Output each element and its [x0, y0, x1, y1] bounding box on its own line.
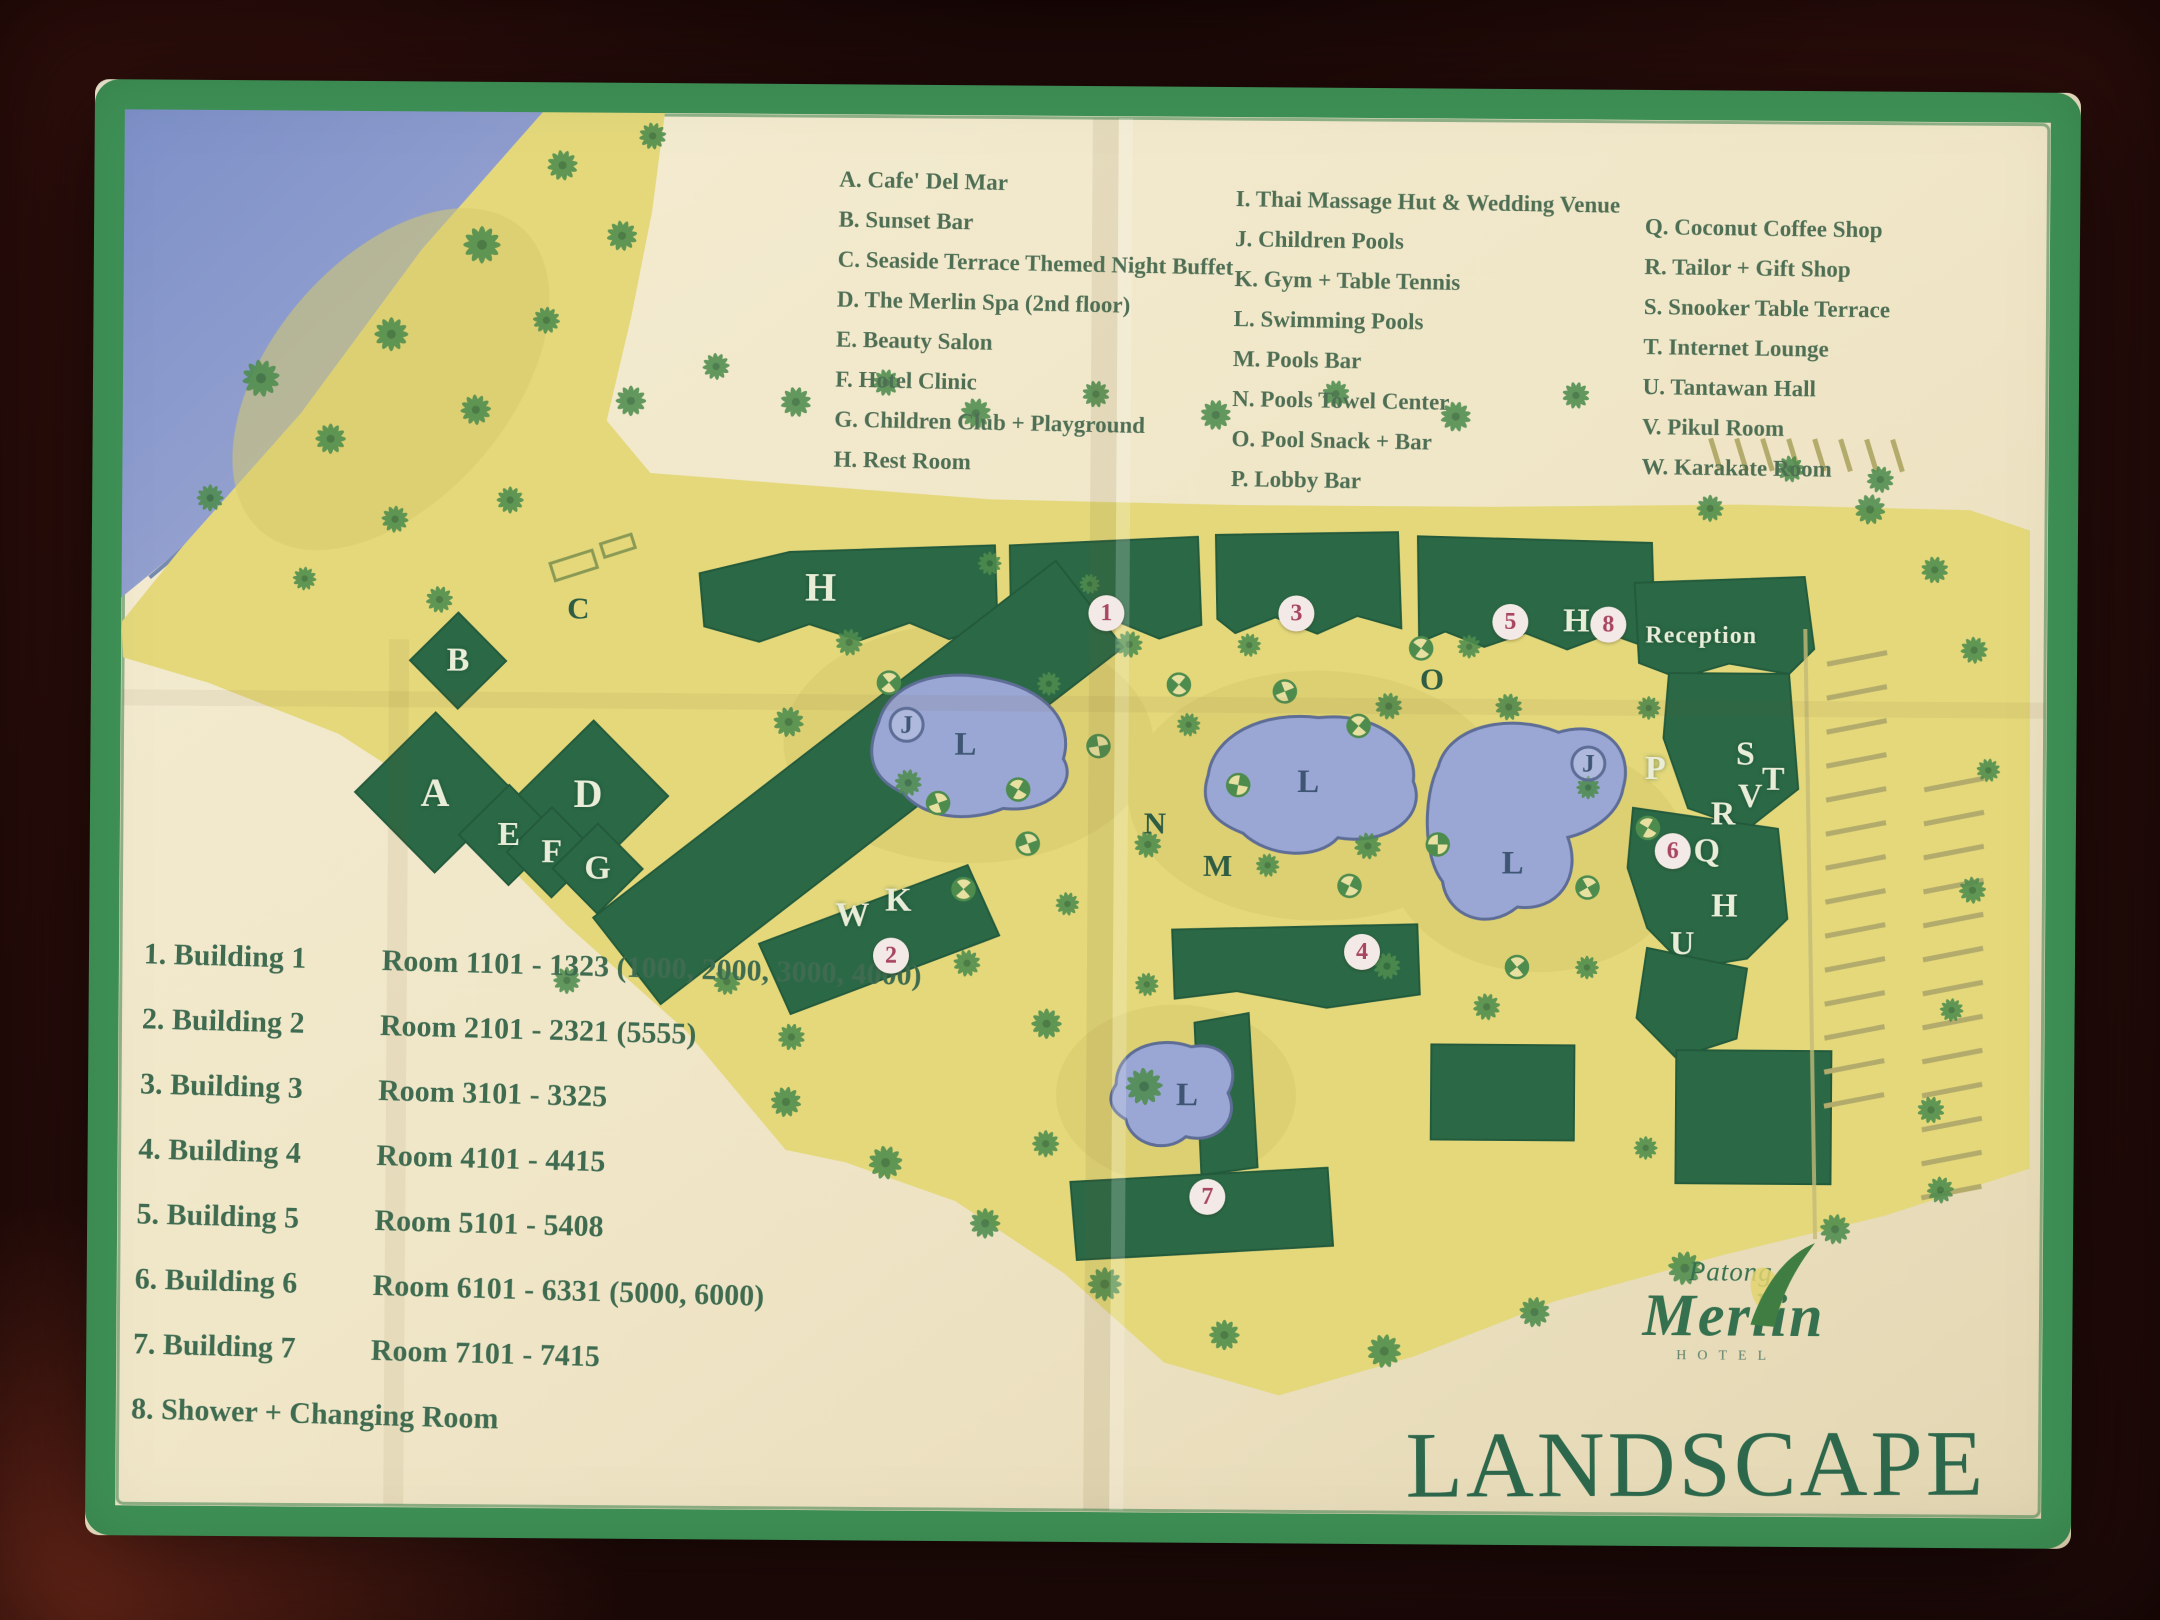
legend-item: R. Tailor + Gift Shop	[1644, 247, 1891, 290]
building-name: 3. Building 3	[139, 1051, 379, 1123]
building-rooms: Room 3101 - 3325	[377, 1058, 608, 1129]
building-name: 7. Building 7	[132, 1311, 372, 1383]
legend-item: U. Tantawan Hall	[1642, 367, 1889, 410]
building-3	[1215, 531, 1402, 634]
building-name: 5. Building 5	[136, 1181, 376, 1253]
building-room-list: 1. Building 1Room 1101 - 1323 (1000, 200…	[130, 921, 922, 1463]
legend-item: S. Snooker Table Terrace	[1644, 287, 1891, 330]
building-name: 6. Building 6	[134, 1246, 374, 1318]
building-name: 2. Building 2	[141, 986, 381, 1058]
logo-leaf-icon	[1732, 1239, 1823, 1330]
legend-column-1: A. Cafe' Del Mar B. Sunset Bar C. Seasid…	[833, 160, 1235, 488]
photo-of-resort-map: { "colors":{ "table_wood":"#2b0e0b","pap…	[0, 0, 2160, 1620]
legend-item: I. Thai Massage Hut & Wedding Venue	[1235, 179, 1620, 226]
building-rooms: Room 7101 - 7415	[370, 1318, 601, 1389]
building-name: 8. Shower + Changing Room	[130, 1376, 499, 1451]
building-rooms: Room 4101 - 4415	[375, 1123, 606, 1194]
patong-merlin-hotel-logo: Patong Merlin HOTEL	[1640, 1256, 1981, 1366]
legend-item: V. Pikul Room	[1642, 407, 1889, 450]
legend-item: T. Internet Lounge	[1643, 327, 1890, 370]
logo-hotel-text: HOTEL	[1676, 1348, 1980, 1366]
legend-item: L. Swimming Pools	[1233, 299, 1618, 346]
building-rooms: Room 5101 - 5408	[374, 1188, 605, 1259]
legend-item: K. Gym + Table Tennis	[1234, 259, 1619, 306]
building-5	[1417, 536, 1656, 650]
building-rooms: Room 2101 - 2321 (5555)	[379, 993, 697, 1067]
building-rooms: Room 6101 - 6331 (5000, 6000)	[372, 1253, 765, 1329]
legend-item: Q. Coconut Coffee Shop	[1645, 207, 1892, 250]
legend-column-3: Q. Coconut Coffee Shop R. Tailor + Gift …	[1641, 207, 1891, 490]
legend-column-2: I. Thai Massage Hut & Wedding Venue J. C…	[1231, 179, 1621, 506]
landscape-map-paper: A. Cafe' Del Mar B. Sunset Bar C. Seasid…	[83, 77, 2083, 1551]
legend-item: W. Karakate Room	[1641, 447, 1888, 490]
legend-item: O. Pool Snack + Bar	[1231, 419, 1616, 466]
building-6-block	[1431, 1044, 1575, 1140]
legend-item: H. Rest Room	[833, 439, 1229, 487]
reception-building	[1634, 576, 1815, 679]
page-title: LANDSCAPE	[1405, 1409, 2045, 1519]
building-name: 1. Building 1	[143, 921, 383, 993]
building-name: 4. Building 4	[137, 1116, 377, 1188]
legend-item: N. Pools Towel Center	[1232, 379, 1617, 426]
legend-item: P. Lobby Bar	[1231, 459, 1616, 506]
building-6b-block	[1675, 1050, 1831, 1184]
legend-item: M. Pools Bar	[1233, 339, 1618, 386]
legend-item: J. Children Pools	[1235, 219, 1620, 266]
